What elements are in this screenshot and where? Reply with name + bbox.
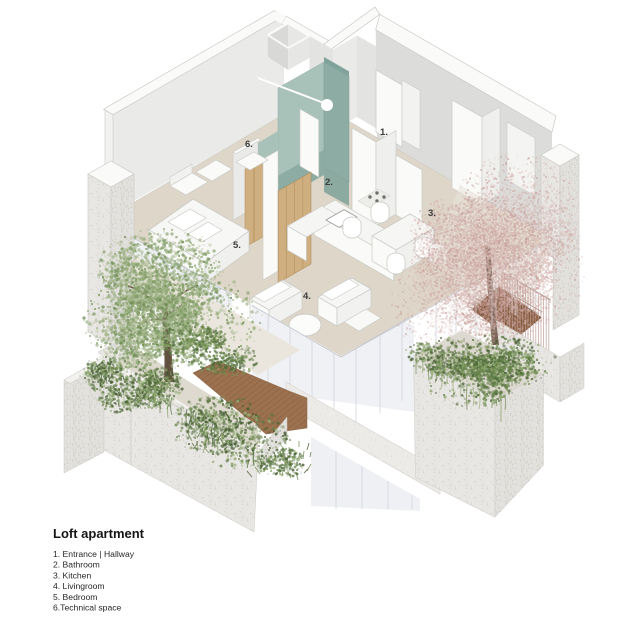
svg-text:6.Technical space: 6.Technical space — [53, 603, 122, 613]
svg-text:3. Kitchen: 3. Kitchen — [53, 570, 91, 580]
svg-text:4. Livingroom: 4. Livingroom — [53, 581, 105, 591]
svg-text:2.: 2. — [325, 177, 333, 188]
svg-text:2. Bathroom: 2. Bathroom — [53, 560, 100, 570]
svg-text:Loft apartment: Loft apartment — [53, 526, 145, 541]
svg-text:5. Bedroom: 5. Bedroom — [53, 592, 97, 602]
svg-text:6.: 6. — [245, 139, 253, 150]
svg-text:4.: 4. — [303, 291, 311, 302]
svg-text:1. Entrance | Hallway: 1. Entrance | Hallway — [53, 549, 135, 559]
svg-text:3.: 3. — [428, 208, 436, 219]
svg-text:1.: 1. — [380, 127, 388, 138]
svg-text:5.: 5. — [233, 240, 241, 251]
